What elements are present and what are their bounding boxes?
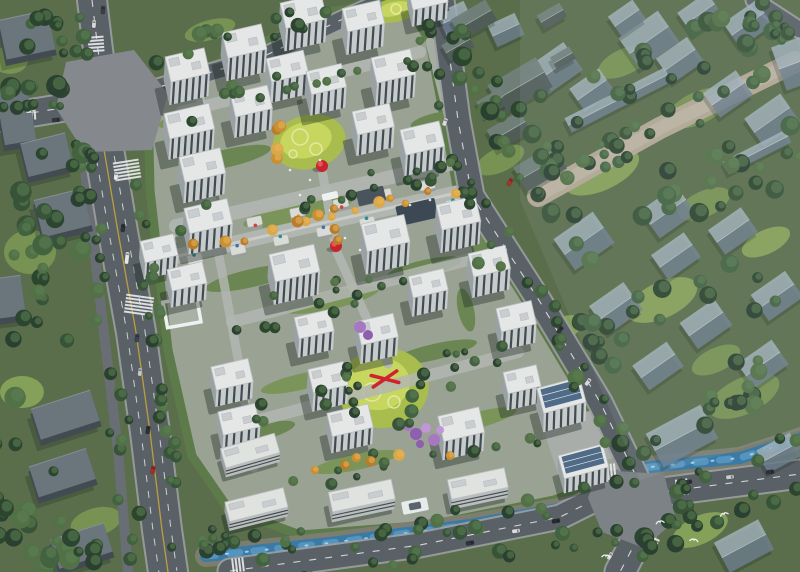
render-canvas xyxy=(0,0,800,572)
vehicle xyxy=(134,334,139,342)
vehicle xyxy=(726,474,734,479)
vehicle xyxy=(137,368,142,376)
vehicle xyxy=(766,469,774,474)
vehicle xyxy=(114,172,119,180)
vehicle xyxy=(145,426,150,434)
vehicle xyxy=(121,224,126,232)
vehicle xyxy=(101,6,106,14)
aerial-masterplan-rendering: Bird's-eye architectural rendering of a … xyxy=(0,0,800,572)
vehicle xyxy=(52,118,60,123)
vehicle xyxy=(92,20,97,28)
vehicle xyxy=(150,466,155,474)
